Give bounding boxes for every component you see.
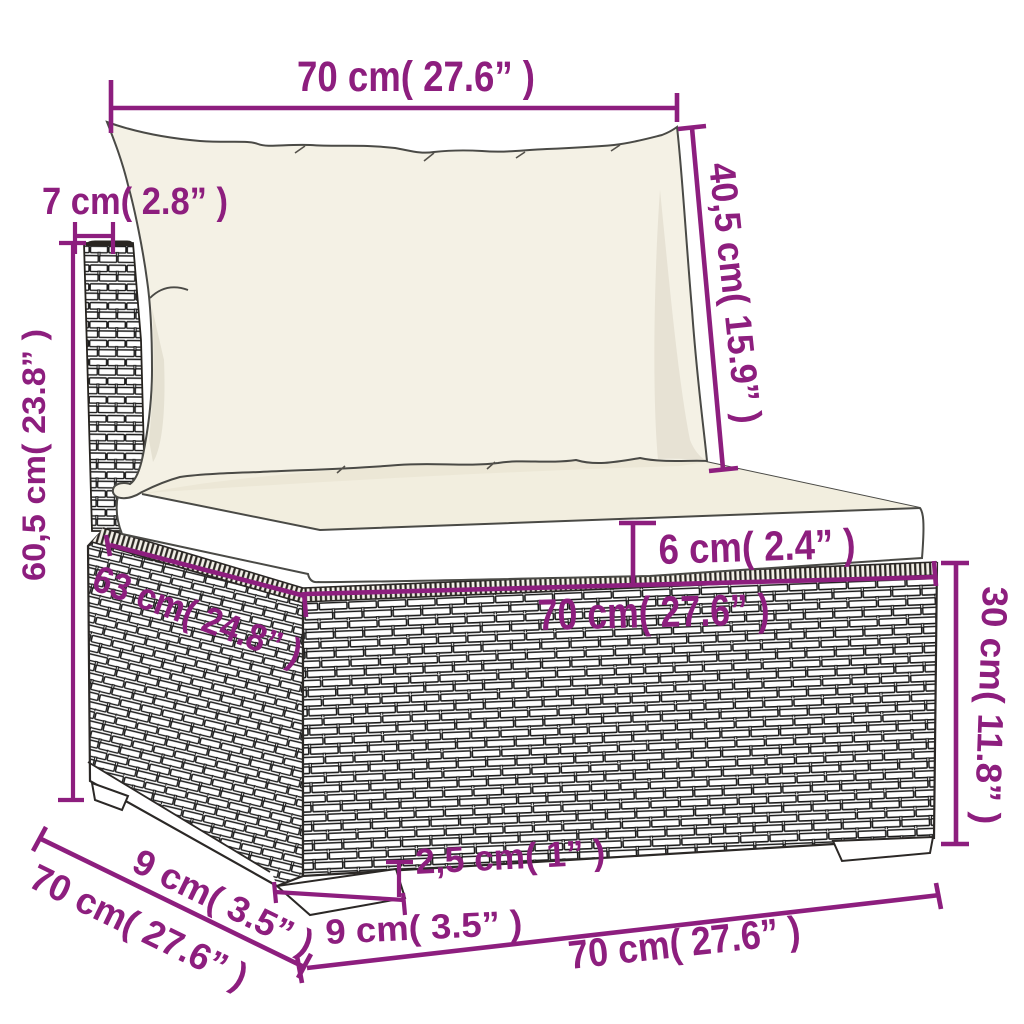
svg-text:6 cm( 2.4” ): 6 cm( 2.4” ) xyxy=(658,520,856,573)
svg-text:60,5 cm( 23.8” ): 60,5 cm( 23.8” ) xyxy=(16,329,52,581)
svg-text:7 cm( 2.8” ): 7 cm( 2.8” ) xyxy=(42,181,228,223)
svg-text:70 cm( 27.6” ): 70 cm( 27.6” ) xyxy=(537,585,770,640)
svg-text:30 cm( 11.8” ): 30 cm( 11.8” ) xyxy=(967,586,1016,825)
svg-text:70 cm( 27.6” ): 70 cm( 27.6” ) xyxy=(297,53,535,101)
